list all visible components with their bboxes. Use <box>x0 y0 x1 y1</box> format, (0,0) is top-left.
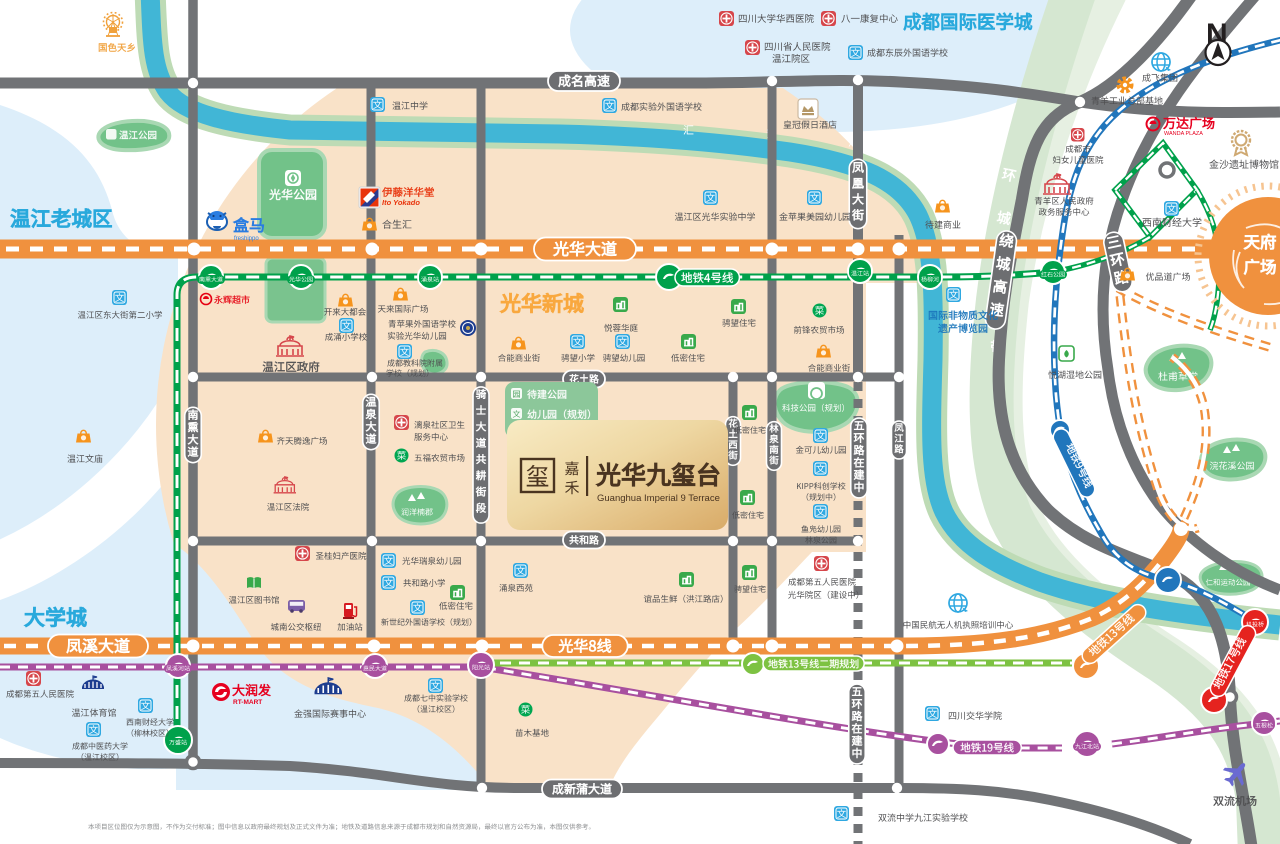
svg-text:RT-MART: RT-MART <box>233 699 262 706</box>
svg-text:Ito Yokado: Ito Yokado <box>382 198 420 207</box>
svg-text:freshippo: freshippo <box>234 236 259 242</box>
svg-text:WANDA PLAZA: WANDA PLAZA <box>1164 131 1203 137</box>
svg-text:Guanghua Imperial 9 Terrace: Guanghua Imperial 9 Terrace <box>597 493 720 504</box>
